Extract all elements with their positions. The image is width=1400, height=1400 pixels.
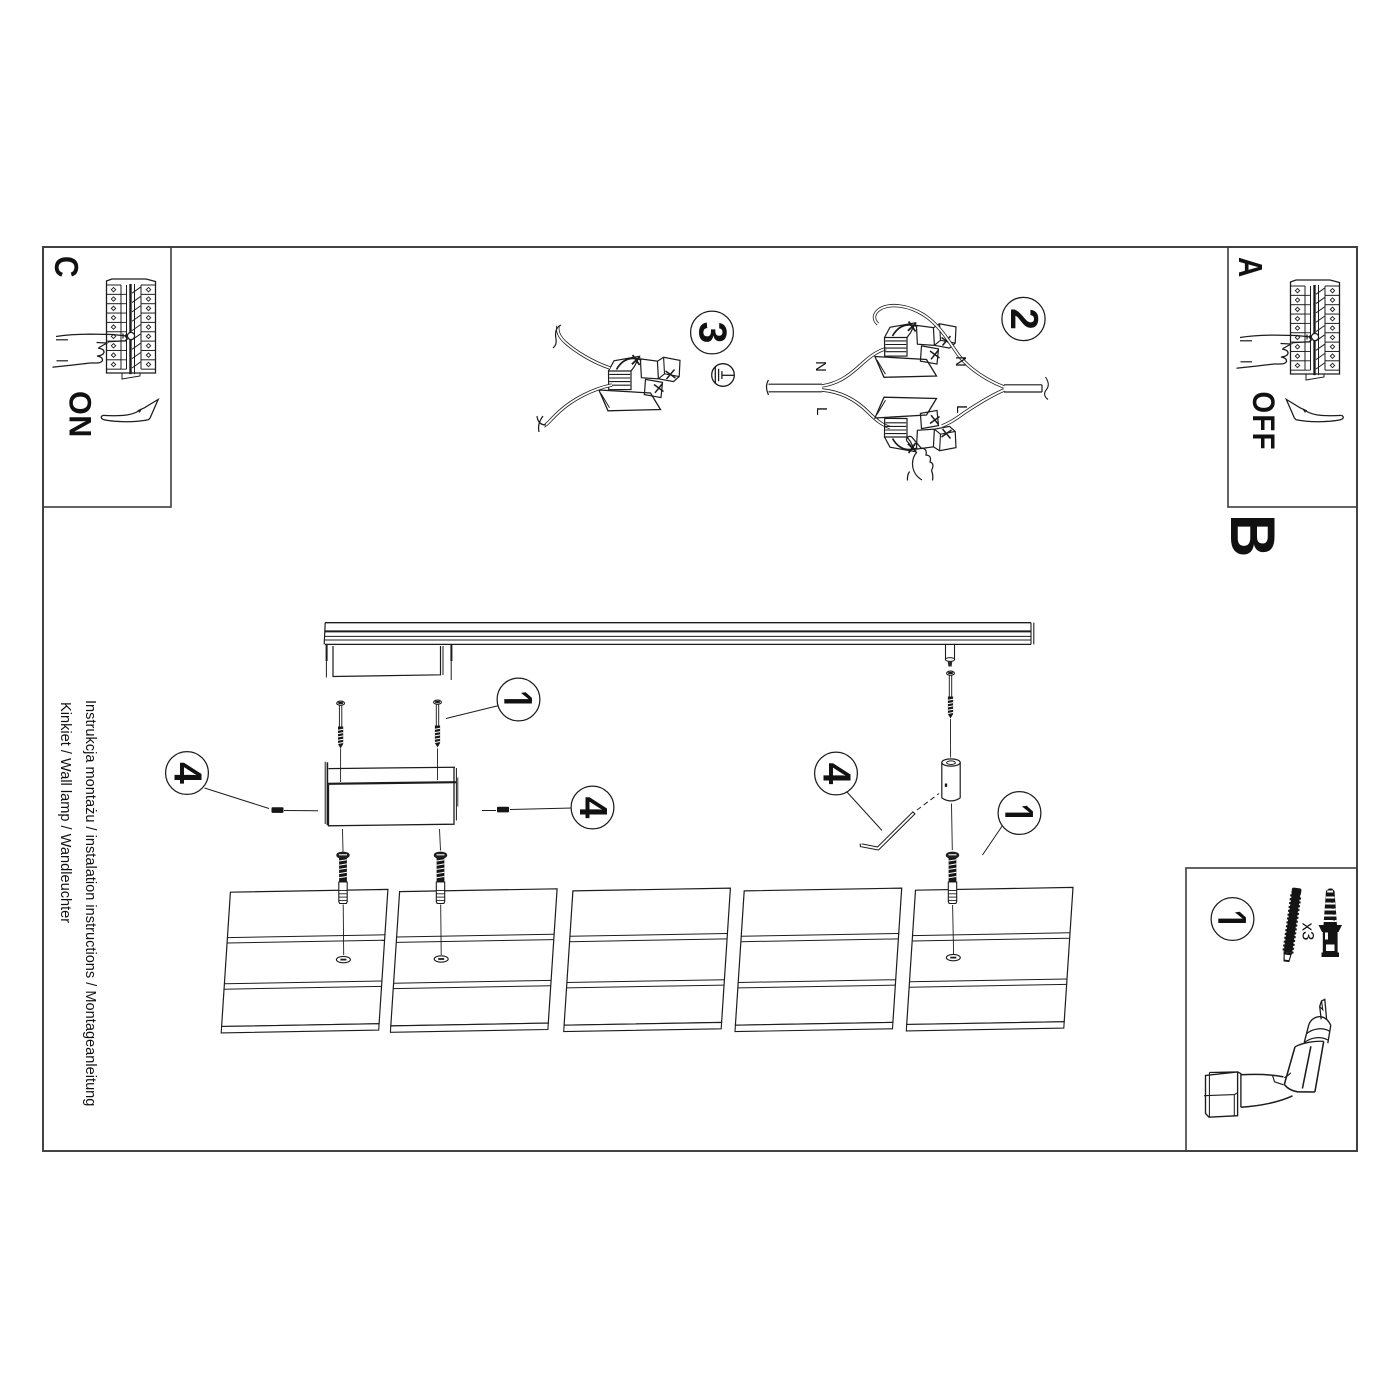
svg-text:3: 3 xyxy=(691,322,734,344)
svg-text:N: N xyxy=(812,361,829,372)
svg-text:Instrukcja montażu / instalati: Instrukcja montażu / instalation instruc… xyxy=(82,700,98,1106)
svg-text:B: B xyxy=(1217,514,1288,557)
svg-text:4: 4 xyxy=(571,797,614,819)
svg-text:OFF: OFF xyxy=(1246,392,1281,451)
svg-text:ON: ON xyxy=(62,391,98,438)
svg-text:x3: x3 xyxy=(1299,923,1318,941)
svg-text:A: A xyxy=(1231,257,1268,277)
svg-text:4: 4 xyxy=(815,763,858,785)
svg-text:2: 2 xyxy=(1002,308,1045,330)
svg-text:C: C xyxy=(48,256,85,277)
svg-text:L: L xyxy=(813,407,830,415)
svg-text:Kinkiet / Wall lamp / Wandleuc: Kinkiet / Wall lamp / Wandleuchter xyxy=(57,702,73,923)
svg-text:L: L xyxy=(953,405,970,413)
svg-text:4: 4 xyxy=(166,762,209,784)
svg-text:N: N xyxy=(952,356,969,367)
